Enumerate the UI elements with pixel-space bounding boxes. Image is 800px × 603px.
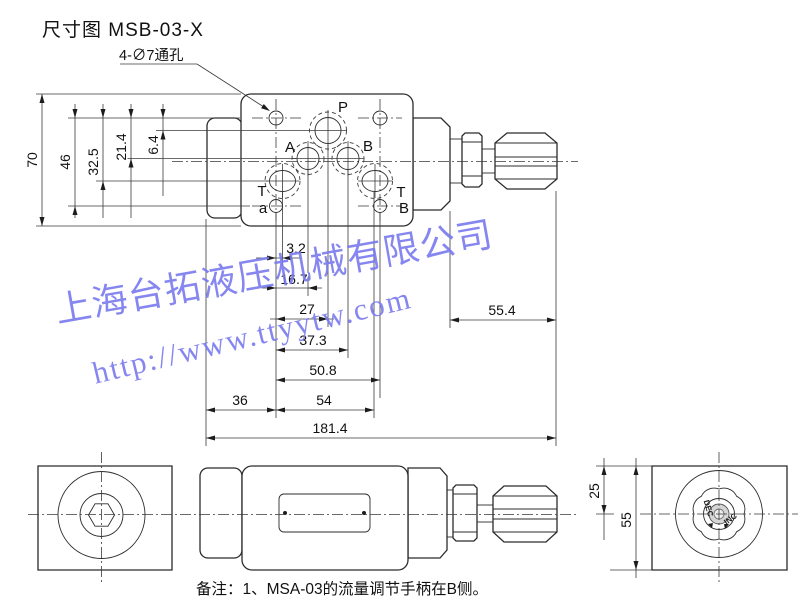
port-label-drain-a: a — [259, 200, 268, 217]
side-valve-body — [242, 466, 408, 570]
page-title: 尺寸图 MSB-03-X — [42, 19, 204, 41]
horizontal-dimensions: 3.2 16.7 27 37.3 50.8 36 54 — [206, 240, 556, 441]
dim-37-3: 37.3 — [299, 332, 326, 348]
lock-nut — [462, 133, 482, 187]
side-dimensions: 25 55 — [586, 458, 652, 578]
lower-block-left — [207, 118, 242, 218]
side-lower-block-left — [200, 468, 242, 558]
side-lower-block-right — [408, 468, 447, 558]
dim-32-5: 32.5 — [85, 148, 101, 175]
valve-dimension-drawing: P A B T a T B — [0, 0, 800, 603]
port-label-p: P — [338, 99, 348, 116]
dim-46: 46 — [57, 154, 73, 170]
footnote: 备注：1、MSA-03的流量调节手柄在B侧。 — [196, 580, 488, 598]
dim-70: 70 — [24, 152, 40, 168]
dim-181-4: 181.4 — [312, 420, 347, 436]
port-label-a: A — [285, 139, 295, 156]
dimension-drawing-page: P A B T a T B — [0, 0, 800, 603]
dim-16-7: 16.7 — [280, 271, 307, 287]
port-label-b-bottom: B — [399, 200, 409, 217]
port-label-t-left: T — [257, 183, 266, 200]
adjustment-knob — [495, 133, 557, 189]
lower-block-right — [413, 118, 450, 210]
dim-27: 27 — [299, 301, 315, 317]
port-label-t-right: T — [396, 184, 405, 201]
side-adjustment-knob — [493, 486, 557, 542]
bolt-hole-callout: 4-∅7通孔 — [119, 47, 184, 64]
end-view-left — [38, 452, 172, 583]
dim-55: 55 — [618, 512, 634, 528]
side-lock-nut — [453, 485, 477, 541]
port-label-b: B — [363, 138, 373, 155]
dim-6-4: 6.4 — [145, 135, 161, 155]
dim-54: 54 — [316, 392, 332, 408]
end-view-right: DEC INC — [640, 452, 798, 582]
dim-36: 36 — [232, 392, 248, 408]
dim-55-4: 55.4 — [488, 302, 515, 318]
dim-21-4: 21.4 — [113, 133, 129, 160]
dim-50-8: 50.8 — [309, 362, 336, 378]
dim-3-2: 3.2 — [286, 240, 306, 256]
dim-25: 25 — [586, 483, 602, 499]
